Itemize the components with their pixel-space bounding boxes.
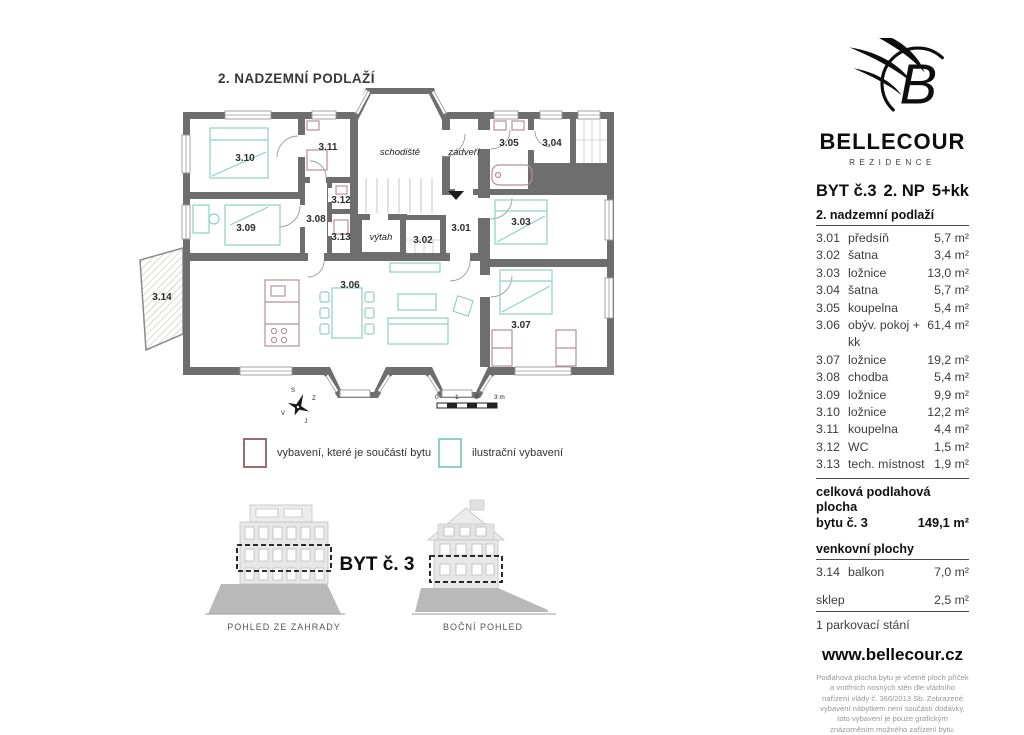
- table-row: 3.07 ložnice 19,2 m²: [816, 352, 969, 369]
- floor-label: 2. nadzemní podlaží: [816, 208, 969, 226]
- balcony-row: 3.14 balkon 7,0 m²: [816, 563, 969, 581]
- side-elevation: [412, 500, 556, 614]
- room-name: ložnice: [848, 352, 927, 369]
- room-name: ložnice: [848, 265, 927, 282]
- garden-caption: POHLED ZE ZAHRADY: [227, 622, 341, 632]
- cellar-area: 2,5 m²: [934, 593, 969, 607]
- svg-text:J: J: [305, 419, 308, 425]
- cellar-row: sklep 2,5 m²: [816, 593, 969, 612]
- legend-included-swatch: [243, 438, 267, 468]
- room-number: 3.10: [816, 404, 848, 421]
- room-number: 3.08: [816, 369, 848, 386]
- svg-text:3.04: 3.04: [542, 138, 562, 149]
- svg-text:3.07: 3.07: [511, 320, 531, 331]
- svg-text:B: B: [900, 53, 938, 116]
- room-table: 3.01 předsíň 5,7 m² 3.02 šatna 3,4 m² 3.…: [816, 230, 969, 474]
- table-row: 3.13 tech. místnost 1,9 m²: [816, 456, 969, 473]
- cellar-name: sklep: [816, 593, 845, 607]
- side-caption: BOČNÍ POHLED: [443, 622, 523, 632]
- svg-text:výtah: výtah: [370, 232, 393, 243]
- room-name: WC: [848, 439, 934, 456]
- table-row: 3.09 ložnice 9,9 m²: [816, 387, 969, 404]
- table-row: 3.08 chodba 5,4 m²: [816, 369, 969, 386]
- disclaimer-text: Podlahová plocha bytu je včetně ploch př…: [816, 673, 969, 735]
- table-row: 3.11 koupelna 4,4 m²: [816, 421, 969, 438]
- room-number: 3.02: [816, 247, 848, 264]
- room-name: ložnice: [848, 387, 934, 404]
- room-number: 3.05: [816, 300, 848, 317]
- unit-number: BYT č.3: [816, 182, 877, 201]
- total-label-line2: bytu č. 3: [816, 515, 868, 530]
- elevations: BYT č. 3 POHLED ZE ZAHRADY BOČNÍ POHLED: [200, 495, 570, 640]
- legend-illustrative-swatch: [438, 438, 462, 468]
- room-name: chodba: [848, 369, 934, 386]
- balcony-area: 7,0 m²: [934, 563, 969, 581]
- legend-included-label: vybavení, které je součástí bytu: [277, 447, 431, 459]
- svg-text:3.09: 3.09: [236, 223, 256, 234]
- svg-text:3.03: 3.03: [511, 217, 531, 228]
- room-area: 5,4 m²: [934, 300, 969, 317]
- svg-text:V: V: [281, 411, 285, 417]
- room-area: 12,2 m²: [927, 404, 969, 421]
- room-name: tech. místnost: [848, 456, 934, 473]
- room-area: 61,4 m²: [927, 317, 969, 352]
- svg-text:3.05: 3.05: [499, 138, 519, 149]
- room-number: 3.06: [816, 317, 848, 352]
- room-area: 5,7 m²: [934, 230, 969, 247]
- room-number: 3.03: [816, 265, 848, 282]
- room-area: 3,4 m²: [934, 247, 969, 264]
- brand-subtitle: REZIDENCE: [816, 158, 969, 167]
- svg-text:3.10: 3.10: [235, 153, 255, 164]
- svg-text:schodiště: schodiště: [380, 147, 420, 158]
- svg-text:3.02: 3.02: [413, 235, 433, 246]
- brand-name: BELLECOUR: [816, 129, 969, 155]
- table-row: 3.01 předsíň 5,7 m²: [816, 230, 969, 247]
- svg-text:2: 2: [475, 394, 479, 401]
- parking-label: 1 parkovací stání: [816, 618, 969, 632]
- svg-text:Z: Z: [312, 396, 316, 402]
- table-row: 3.10 ložnice 12,2 m²: [816, 404, 969, 421]
- legend-illustrative: ilustrační vybavení: [438, 438, 563, 468]
- svg-text:3.08: 3.08: [306, 214, 326, 225]
- unit-floor: 2. NP: [884, 182, 925, 201]
- svg-text:0: 0: [435, 394, 439, 401]
- room-area: 1,9 m²: [934, 456, 969, 473]
- room-name: ložnice: [848, 404, 927, 421]
- table-row: 3.12 WC 1,5 m²: [816, 439, 969, 456]
- balcony-name: balkon: [848, 563, 934, 581]
- elevation-unit-label: BYT č. 3: [340, 554, 415, 575]
- svg-text:3.14: 3.14: [152, 292, 172, 303]
- room-name: šatna: [848, 247, 934, 264]
- room-name: šatna: [848, 282, 934, 299]
- floor-plan: 3.10 3.11 3.09 3.08 3.12 3.13 3.02 3.01 …: [130, 60, 640, 430]
- room-name: koupelna: [848, 300, 934, 317]
- unit-disposition: 5+kk: [932, 182, 969, 201]
- room-area: 1,5 m²: [934, 439, 969, 456]
- room-area: 19,2 m²: [927, 352, 969, 369]
- svg-text:zádveří: zádveří: [447, 147, 481, 158]
- svg-text:3.12: 3.12: [331, 195, 351, 206]
- legend-included: vybavení, které je součástí bytu: [243, 438, 431, 468]
- compass-icon: S Z V J: [281, 388, 316, 425]
- svg-text:3.11: 3.11: [319, 142, 338, 153]
- total-area-block: celková podlahová plocha bytu č. 3 149,1…: [816, 478, 969, 530]
- room-number: 3.07: [816, 352, 848, 369]
- table-row: 3.05 koupelna 5,4 m²: [816, 300, 969, 317]
- table-row: 3.06 obýv. pokoj + kk 61,4 m²: [816, 317, 969, 352]
- table-row: 3.04 šatna 5,7 m²: [816, 282, 969, 299]
- room-number: 3.12: [816, 439, 848, 456]
- room-number: 3.09: [816, 387, 848, 404]
- balcony-number: 3.14: [816, 563, 848, 581]
- total-label-line1: celková podlahová plocha: [816, 484, 969, 514]
- total-area-value: 149,1 m²: [918, 515, 969, 530]
- room-name: obýv. pokoj + kk: [848, 317, 927, 352]
- room-name: koupelna: [848, 421, 934, 438]
- room-area: 5,4 m²: [934, 369, 969, 386]
- info-panel: B BELLECOUR REZIDENCE BYT č.3 2. NP 5+kk…: [816, 38, 969, 735]
- room-number: 3.01: [816, 230, 848, 247]
- room-number: 3.04: [816, 282, 848, 299]
- room-number: 3.11: [816, 421, 848, 438]
- svg-text:1: 1: [455, 394, 459, 401]
- svg-text:S: S: [291, 388, 295, 394]
- room-area: 5,7 m²: [934, 282, 969, 299]
- garden-elevation: [205, 505, 345, 614]
- svg-text:3 m: 3 m: [494, 394, 505, 401]
- room-area: 9,9 m²: [934, 387, 969, 404]
- legend-illustrative-label: ilustrační vybavení: [472, 447, 563, 459]
- room-number: 3.13: [816, 456, 848, 473]
- bellecour-logo-icon: B: [816, 38, 969, 122]
- svg-text:3.06: 3.06: [340, 280, 360, 291]
- outdoor-section-label: venkovní plochy: [816, 542, 969, 560]
- unit-header: BYT č.3 2. NP 5+kk: [816, 182, 969, 201]
- room-area: 4,4 m²: [934, 421, 969, 438]
- room-name: předsíň: [848, 230, 934, 247]
- room-area: 13,0 m²: [927, 265, 969, 282]
- svg-text:3.01: 3.01: [451, 223, 471, 234]
- table-row: 3.02 šatna 3,4 m²: [816, 247, 969, 264]
- svg-text:3.13: 3.13: [331, 232, 351, 243]
- table-row: 3.03 ložnice 13,0 m²: [816, 265, 969, 282]
- website-link[interactable]: www.bellecour.cz: [816, 645, 969, 665]
